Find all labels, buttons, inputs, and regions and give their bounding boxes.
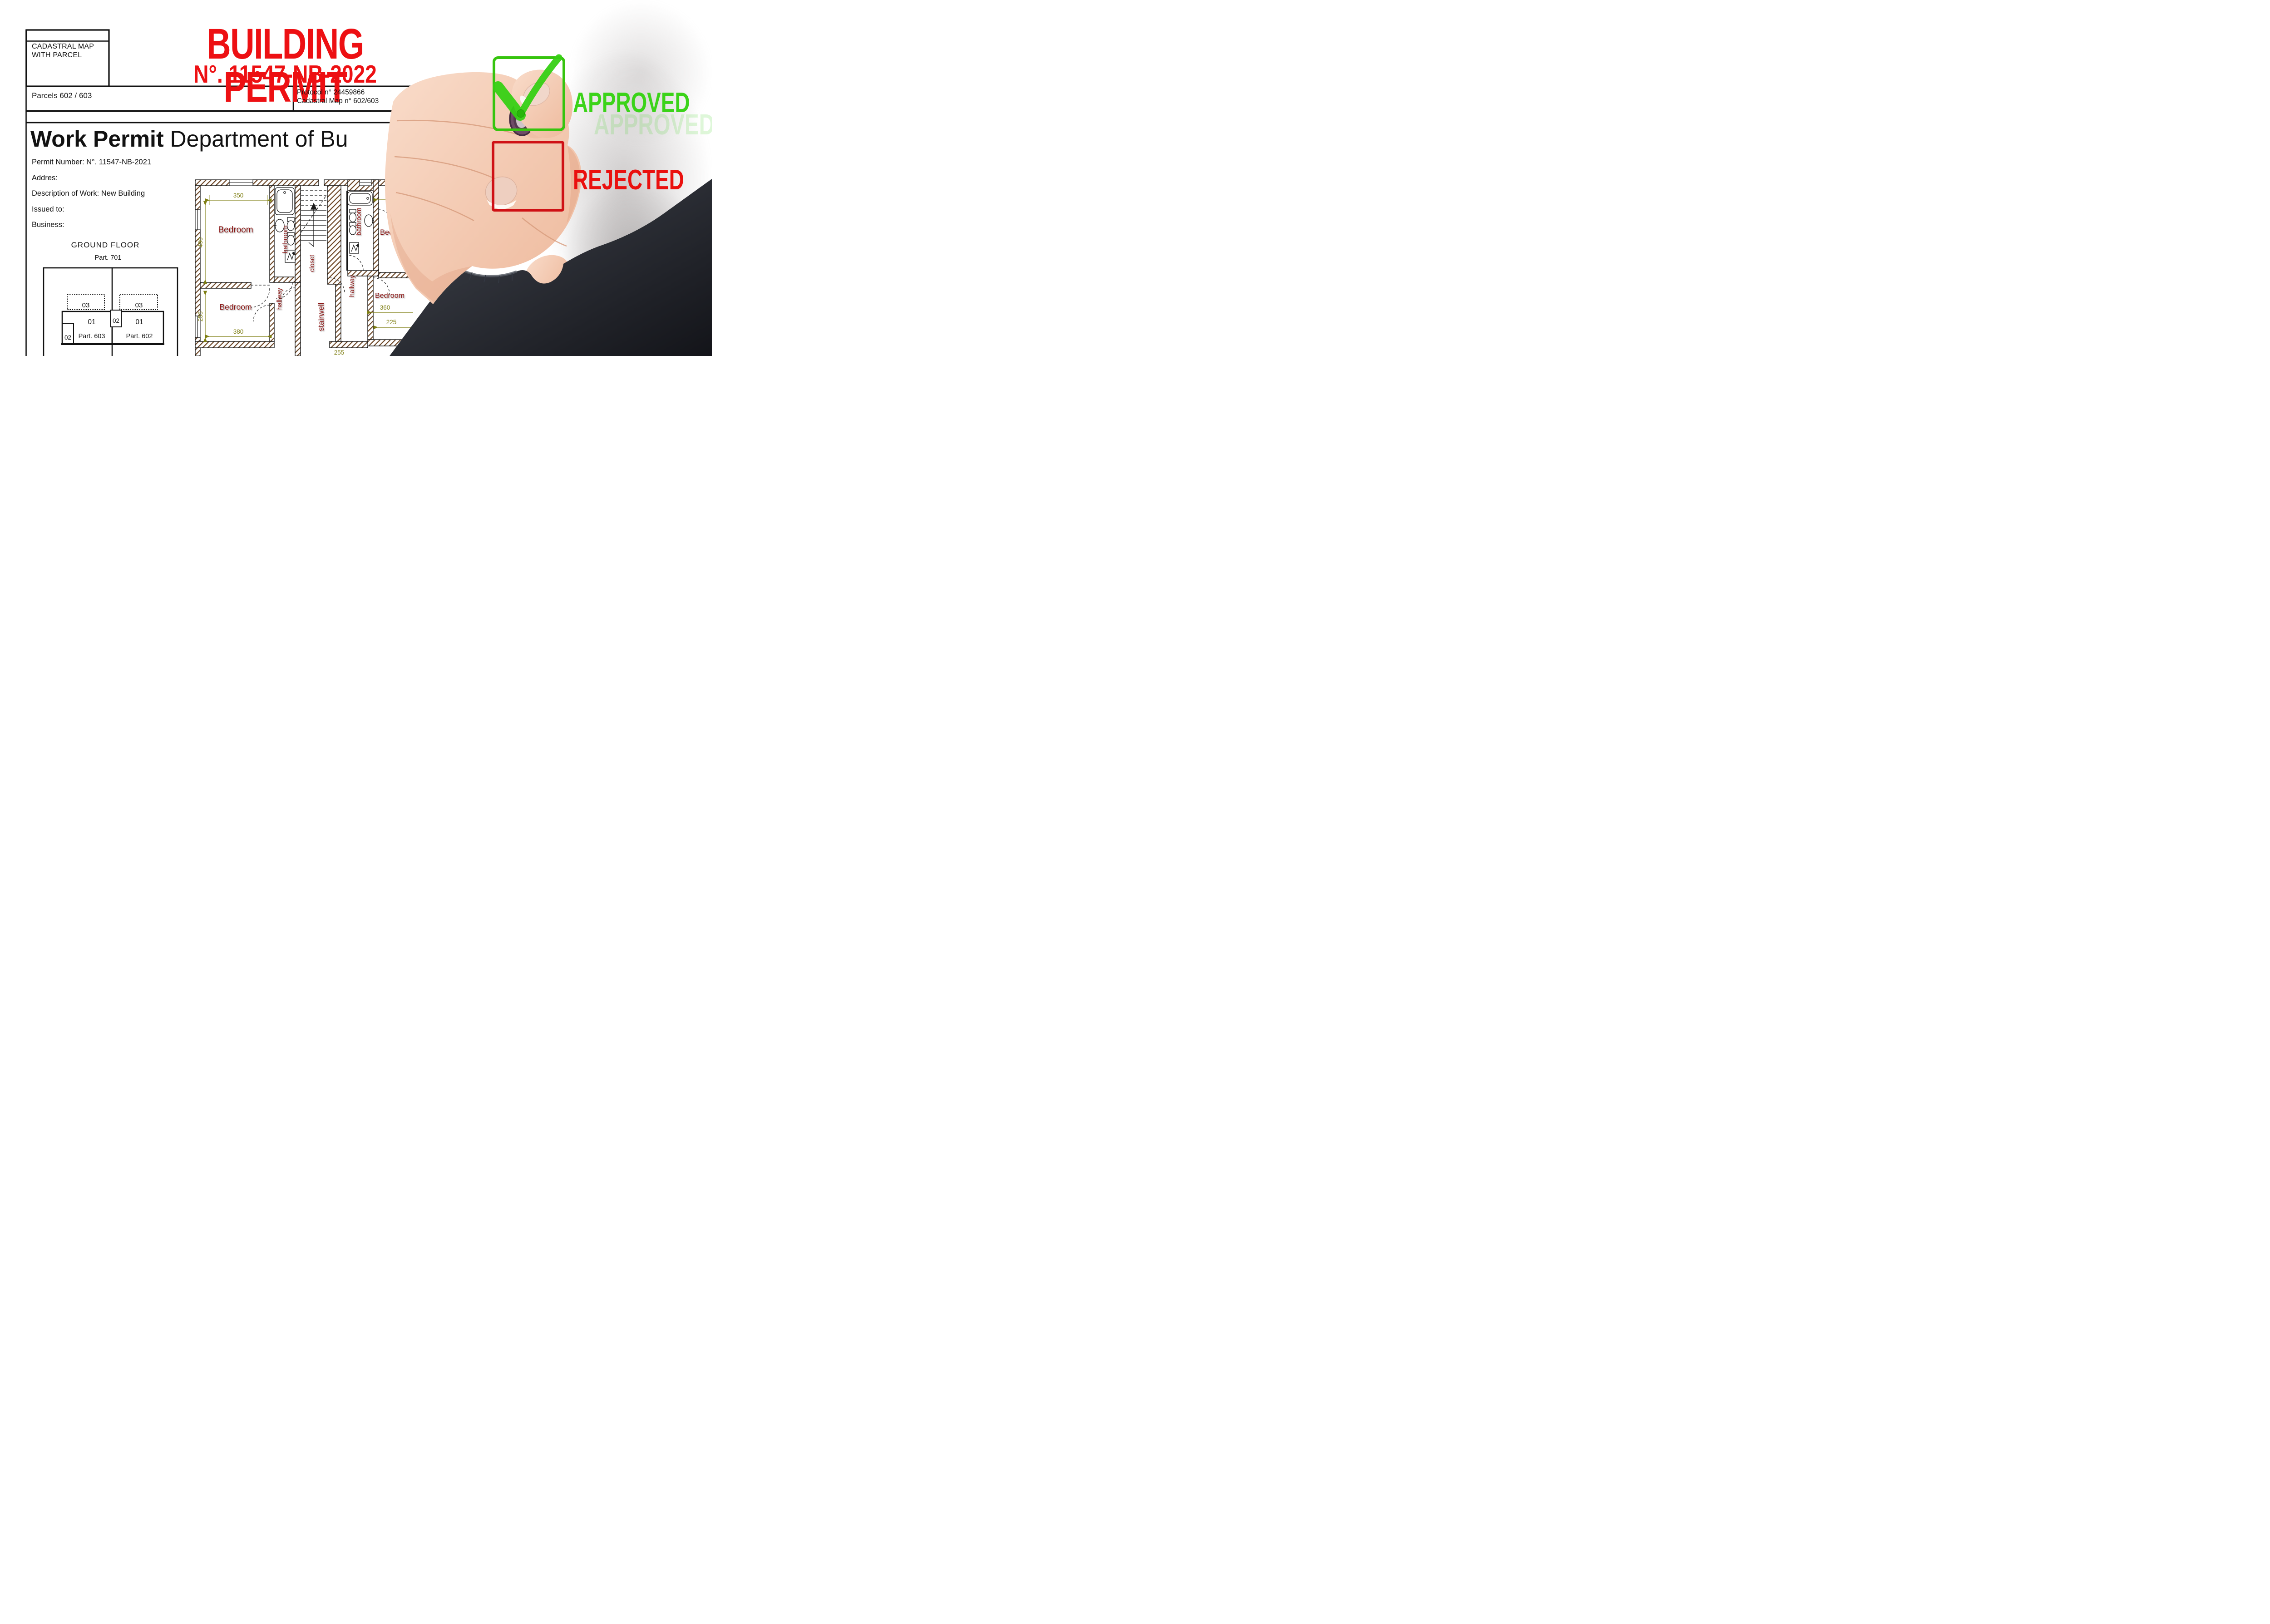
ink-drop-icon	[517, 110, 525, 118]
checkmark-icon	[498, 58, 559, 117]
permit-photo-canvas: GROUND FLOOR Part. 701 03 03 01 Part. 60…	[0, 0, 712, 356]
approved-stamp: APPROVED	[573, 89, 690, 117]
rejected-stamp: REJECTED	[573, 166, 684, 194]
